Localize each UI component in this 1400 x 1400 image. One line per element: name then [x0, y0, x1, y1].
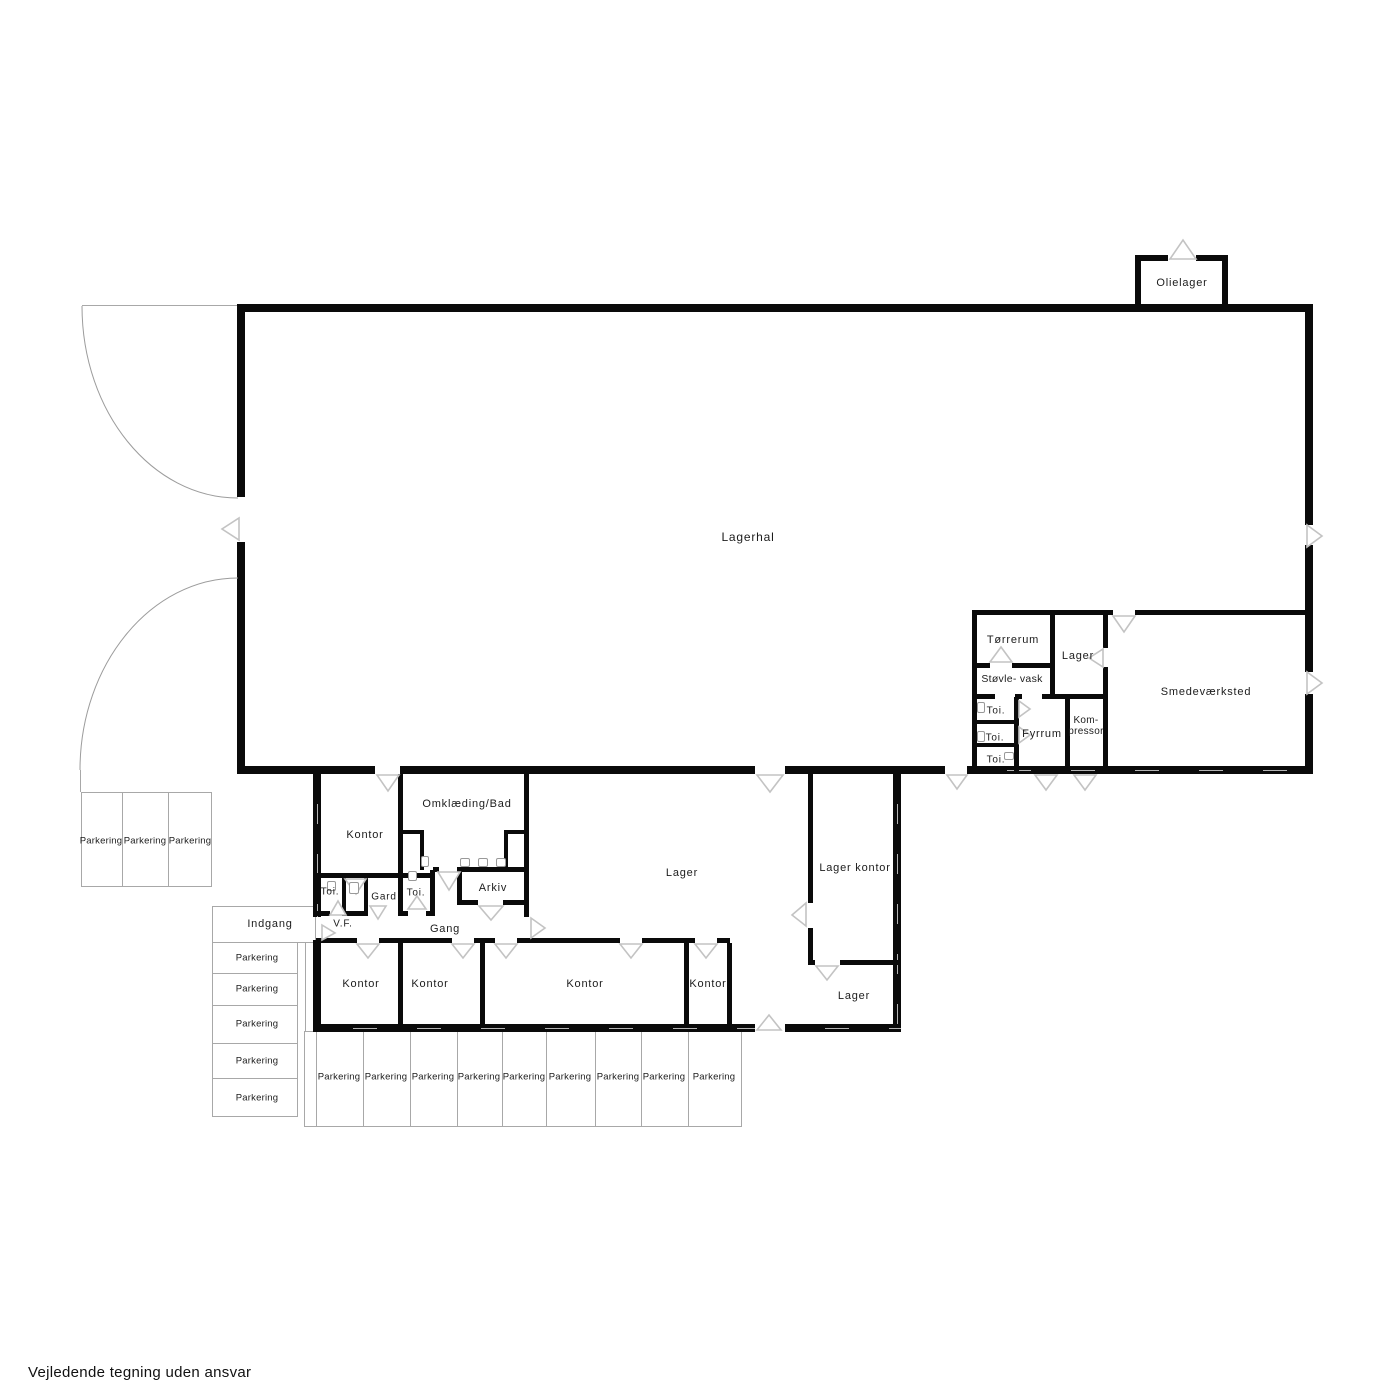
wall [345, 911, 364, 916]
wall [1103, 667, 1108, 774]
room-label-kontor-2: Kontor [411, 978, 448, 990]
wall [316, 911, 330, 916]
room-label-torrerum: Tørrerum [987, 634, 1039, 646]
room-label-kompressor: Kom-pressor [1068, 715, 1103, 737]
fixture-icon [421, 856, 429, 867]
parking-stall-label: Parkering [549, 1072, 591, 1083]
fixture-icon [977, 731, 985, 742]
fixture-icon [460, 858, 470, 867]
parking-divider [212, 1043, 298, 1044]
room-label-lager-mid: Lager [666, 867, 698, 879]
wall [398, 943, 403, 1028]
fixture-icon [408, 871, 417, 881]
parking-stall-label: Parkering [503, 1072, 545, 1083]
room-label-vf: V.F. [333, 919, 353, 930]
door-swing-icon [495, 944, 517, 958]
wall [972, 610, 1113, 615]
wall [1014, 697, 1019, 774]
room-label-toi: Toi. [987, 755, 1006, 766]
parking-stall-label: Parkering [693, 1072, 735, 1083]
room-label-lager-syd: Lager [838, 990, 870, 1002]
parking-stall-label: Parkering [643, 1072, 685, 1083]
floor-plan-canvas: Lagerhal Olielager Tørrerum Lager Støvle… [0, 0, 1400, 1400]
door-swing-icon [357, 944, 379, 958]
door-swing-icon [792, 903, 806, 926]
parking-stall-label: Parkering [236, 953, 278, 964]
door-swing-icon [816, 966, 838, 980]
room-label-stovlevask: Støvle- vask [981, 673, 1042, 685]
door-swing-icon [531, 918, 545, 938]
wall [972, 663, 990, 668]
door-swing-icon [620, 944, 642, 958]
hall-wall-top [237, 304, 1313, 312]
annex-wall-west [313, 940, 321, 1028]
room-label-arkiv: Arkiv [479, 882, 507, 894]
gate-swing-arc [80, 578, 238, 770]
parking-stall-label: Parkering [365, 1072, 407, 1083]
door-swing-icon [222, 518, 239, 540]
door-swing-icon [479, 906, 503, 920]
door-swing-icon [757, 775, 783, 792]
room-label-fyrrum: Fyrrum [1022, 728, 1062, 740]
door-swing-icon [452, 944, 474, 958]
parking-divider [546, 1031, 547, 1127]
parking-divider [212, 973, 298, 974]
parking-divider [688, 1031, 689, 1127]
hall-wall-bottom [898, 766, 945, 774]
hall-wall-bottom [400, 766, 755, 774]
fixture-icon [977, 702, 985, 713]
parking-stall-label: Parkering [169, 836, 211, 847]
wall [808, 774, 813, 903]
wall [433, 867, 439, 872]
hall-wall-left [237, 304, 245, 497]
door-swing-icon [1307, 525, 1322, 547]
room-label-toi: Toi. [986, 733, 1005, 744]
site-line [80, 770, 81, 792]
door-swing-icon [1113, 616, 1135, 632]
parking-stall-label: Parkering [80, 836, 122, 847]
door-swing-icon [1074, 775, 1096, 790]
kompressor-line-1: Kom- [1073, 715, 1098, 726]
door-swing-icon [757, 1015, 781, 1030]
parking-stall-label: Parkering [124, 836, 166, 847]
wall [524, 774, 529, 917]
wall [1135, 610, 1313, 615]
gate-leaf-line [82, 305, 237, 306]
disclaimer-text: Vejledende tegning uden ansvar [28, 1364, 251, 1381]
door-swing-icon [1035, 775, 1057, 790]
annex-wall-east-dashed [893, 774, 901, 1028]
hall-wall-bottom [785, 766, 898, 774]
room-label-kontor-4: Kontor [689, 978, 726, 990]
room-label-omklaedning-bad: Omklæding/Bad [422, 798, 511, 810]
wall [972, 720, 1017, 724]
wall [379, 938, 452, 943]
door-swing-icon [947, 775, 967, 789]
fixture-icon [478, 858, 488, 867]
parking-stall-label: Parkering [458, 1072, 500, 1083]
wall [517, 938, 620, 943]
room-label-kontor-3: Kontor [566, 978, 603, 990]
wall [1050, 610, 1055, 697]
wall [972, 694, 995, 699]
wall [403, 911, 408, 916]
room-label-gard: Gard [371, 892, 396, 903]
parking-lot-mid [212, 942, 298, 1117]
wall [1103, 610, 1108, 648]
olielager-wall [1135, 255, 1141, 308]
kompressor-line-2: pressor [1068, 726, 1103, 737]
wall [972, 743, 1017, 747]
parking-stall-label: Parkering [412, 1072, 454, 1083]
room-label-toi: Toi. [321, 887, 340, 898]
door-swing-icon [1307, 672, 1322, 694]
hall-wall-left [237, 542, 245, 774]
door-swing-icon [695, 944, 717, 958]
wall [457, 900, 478, 905]
room-label-toi: Toi. [407, 888, 426, 899]
room-label-kontor-1: Kontor [342, 978, 379, 990]
hall-wall-right [1305, 694, 1313, 774]
door-swing-icon [990, 647, 1012, 662]
room-label-olielager: Olielager [1156, 277, 1207, 289]
wall [1042, 694, 1108, 699]
door-symbols-layer [0, 0, 1400, 1400]
parking-stall-label: Parkering [236, 1093, 278, 1104]
gate-swing-arc [82, 306, 238, 498]
hall-wall-right [1305, 304, 1313, 525]
fixture-icon [1004, 752, 1014, 760]
wall [316, 938, 357, 943]
door-swing-icon [1019, 701, 1030, 717]
parking-divider [212, 1005, 298, 1006]
room-label-lagerhal: Lagerhal [721, 530, 774, 544]
parking-stall-label: Parkering [236, 1056, 278, 1067]
fixture-icon [349, 882, 359, 894]
hall-wall-bottom [237, 766, 375, 774]
olielager-wall [1222, 255, 1228, 308]
fixture-icon [496, 858, 506, 867]
wall [398, 774, 403, 916]
wall [727, 943, 732, 1028]
wall [684, 943, 689, 1028]
wall [480, 943, 485, 1028]
room-label-lager-se: Lager [1062, 650, 1094, 662]
parking-stall-label: Parkering [236, 984, 278, 995]
door-swing-icon [1170, 240, 1196, 259]
room-label-kontor-nw: Kontor [346, 829, 383, 841]
wall [430, 870, 435, 916]
wall [459, 867, 528, 872]
door-swing-icon [370, 906, 386, 919]
parking-divider [212, 1078, 298, 1079]
wall [1012, 663, 1053, 668]
hall-wall-right [1305, 545, 1313, 672]
room-label-smedevaerksted: Smedeværksted [1161, 686, 1252, 698]
parking-stall-label: Parkering [236, 1019, 278, 1030]
room-label-gang: Gang [430, 923, 460, 935]
parking-stall-label: Parkering [597, 1072, 639, 1083]
parking-stall-label: Parkering [318, 1072, 360, 1083]
site-line [305, 943, 306, 1031]
entrance-label: Indgang [247, 918, 292, 930]
wall [840, 960, 898, 965]
annex-wall-south-dashed [785, 1024, 901, 1032]
room-label-lager-kontor: Lager kontor [819, 862, 890, 874]
room-label-toi: Toi. [987, 706, 1006, 717]
wall [364, 878, 368, 916]
wall [972, 610, 977, 774]
wall [811, 960, 815, 965]
door-swing-icon [377, 775, 399, 791]
